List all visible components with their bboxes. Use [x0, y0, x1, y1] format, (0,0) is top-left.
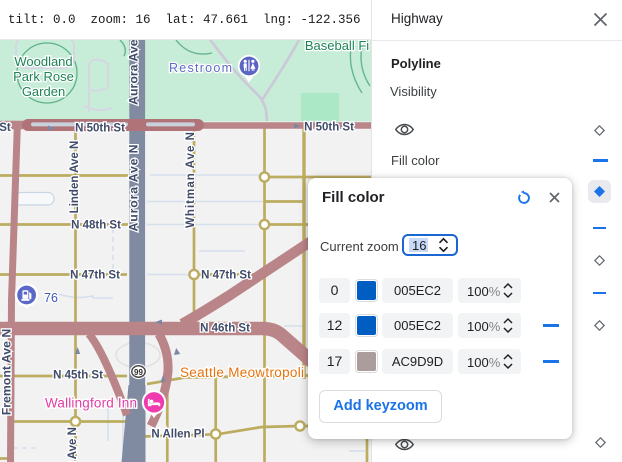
svg-text:Garden: Garden	[22, 84, 65, 99]
svg-text:N 48th St: N 48th St	[71, 220, 121, 232]
svg-text:N 47th St: N 47th St	[70, 270, 120, 282]
svg-text:N 46th St: N 46th St	[200, 323, 250, 335]
svg-text:76: 76	[44, 291, 58, 305]
svg-text:Whitman Ave N: Whitman Ave N	[185, 132, 197, 228]
svg-text:Wallingford Inn: Wallingford Inn	[45, 396, 137, 411]
svg-text:99: 99	[134, 368, 143, 377]
svg-text:Restroom: Restroom	[169, 61, 232, 75]
svg-text:Park Rose: Park Rose	[13, 69, 74, 84]
svg-text:Woodland: Woodland	[14, 54, 72, 69]
svg-text:N 50th St: N 50th St	[304, 122, 354, 134]
svg-text:N 45th St: N 45th St	[53, 370, 103, 382]
svg-text:N Allen Pl: N Allen Pl	[151, 429, 204, 441]
svg-text:St: St	[0, 122, 11, 134]
svg-text:N 50th St: N 50th St	[75, 123, 125, 135]
svg-text:Linden Ave N: Linden Ave N	[69, 141, 81, 214]
svg-text:Seattle Meowtropoli: Seattle Meowtropoli	[180, 365, 304, 380]
svg-text:N 47th St: N 47th St	[201, 270, 251, 282]
svg-text:Baseball Fi: Baseball Fi	[305, 40, 369, 53]
svg-text:Aurora Ave N: Aurora Ave N	[126, 144, 140, 231]
svg-text:Fremont Ave N: Fremont Ave N	[0, 329, 14, 416]
svg-text:nt Ave N: nt Ave N	[67, 427, 79, 462]
svg-text:Aurora Ave N: Aurora Ave N	[126, 40, 140, 105]
